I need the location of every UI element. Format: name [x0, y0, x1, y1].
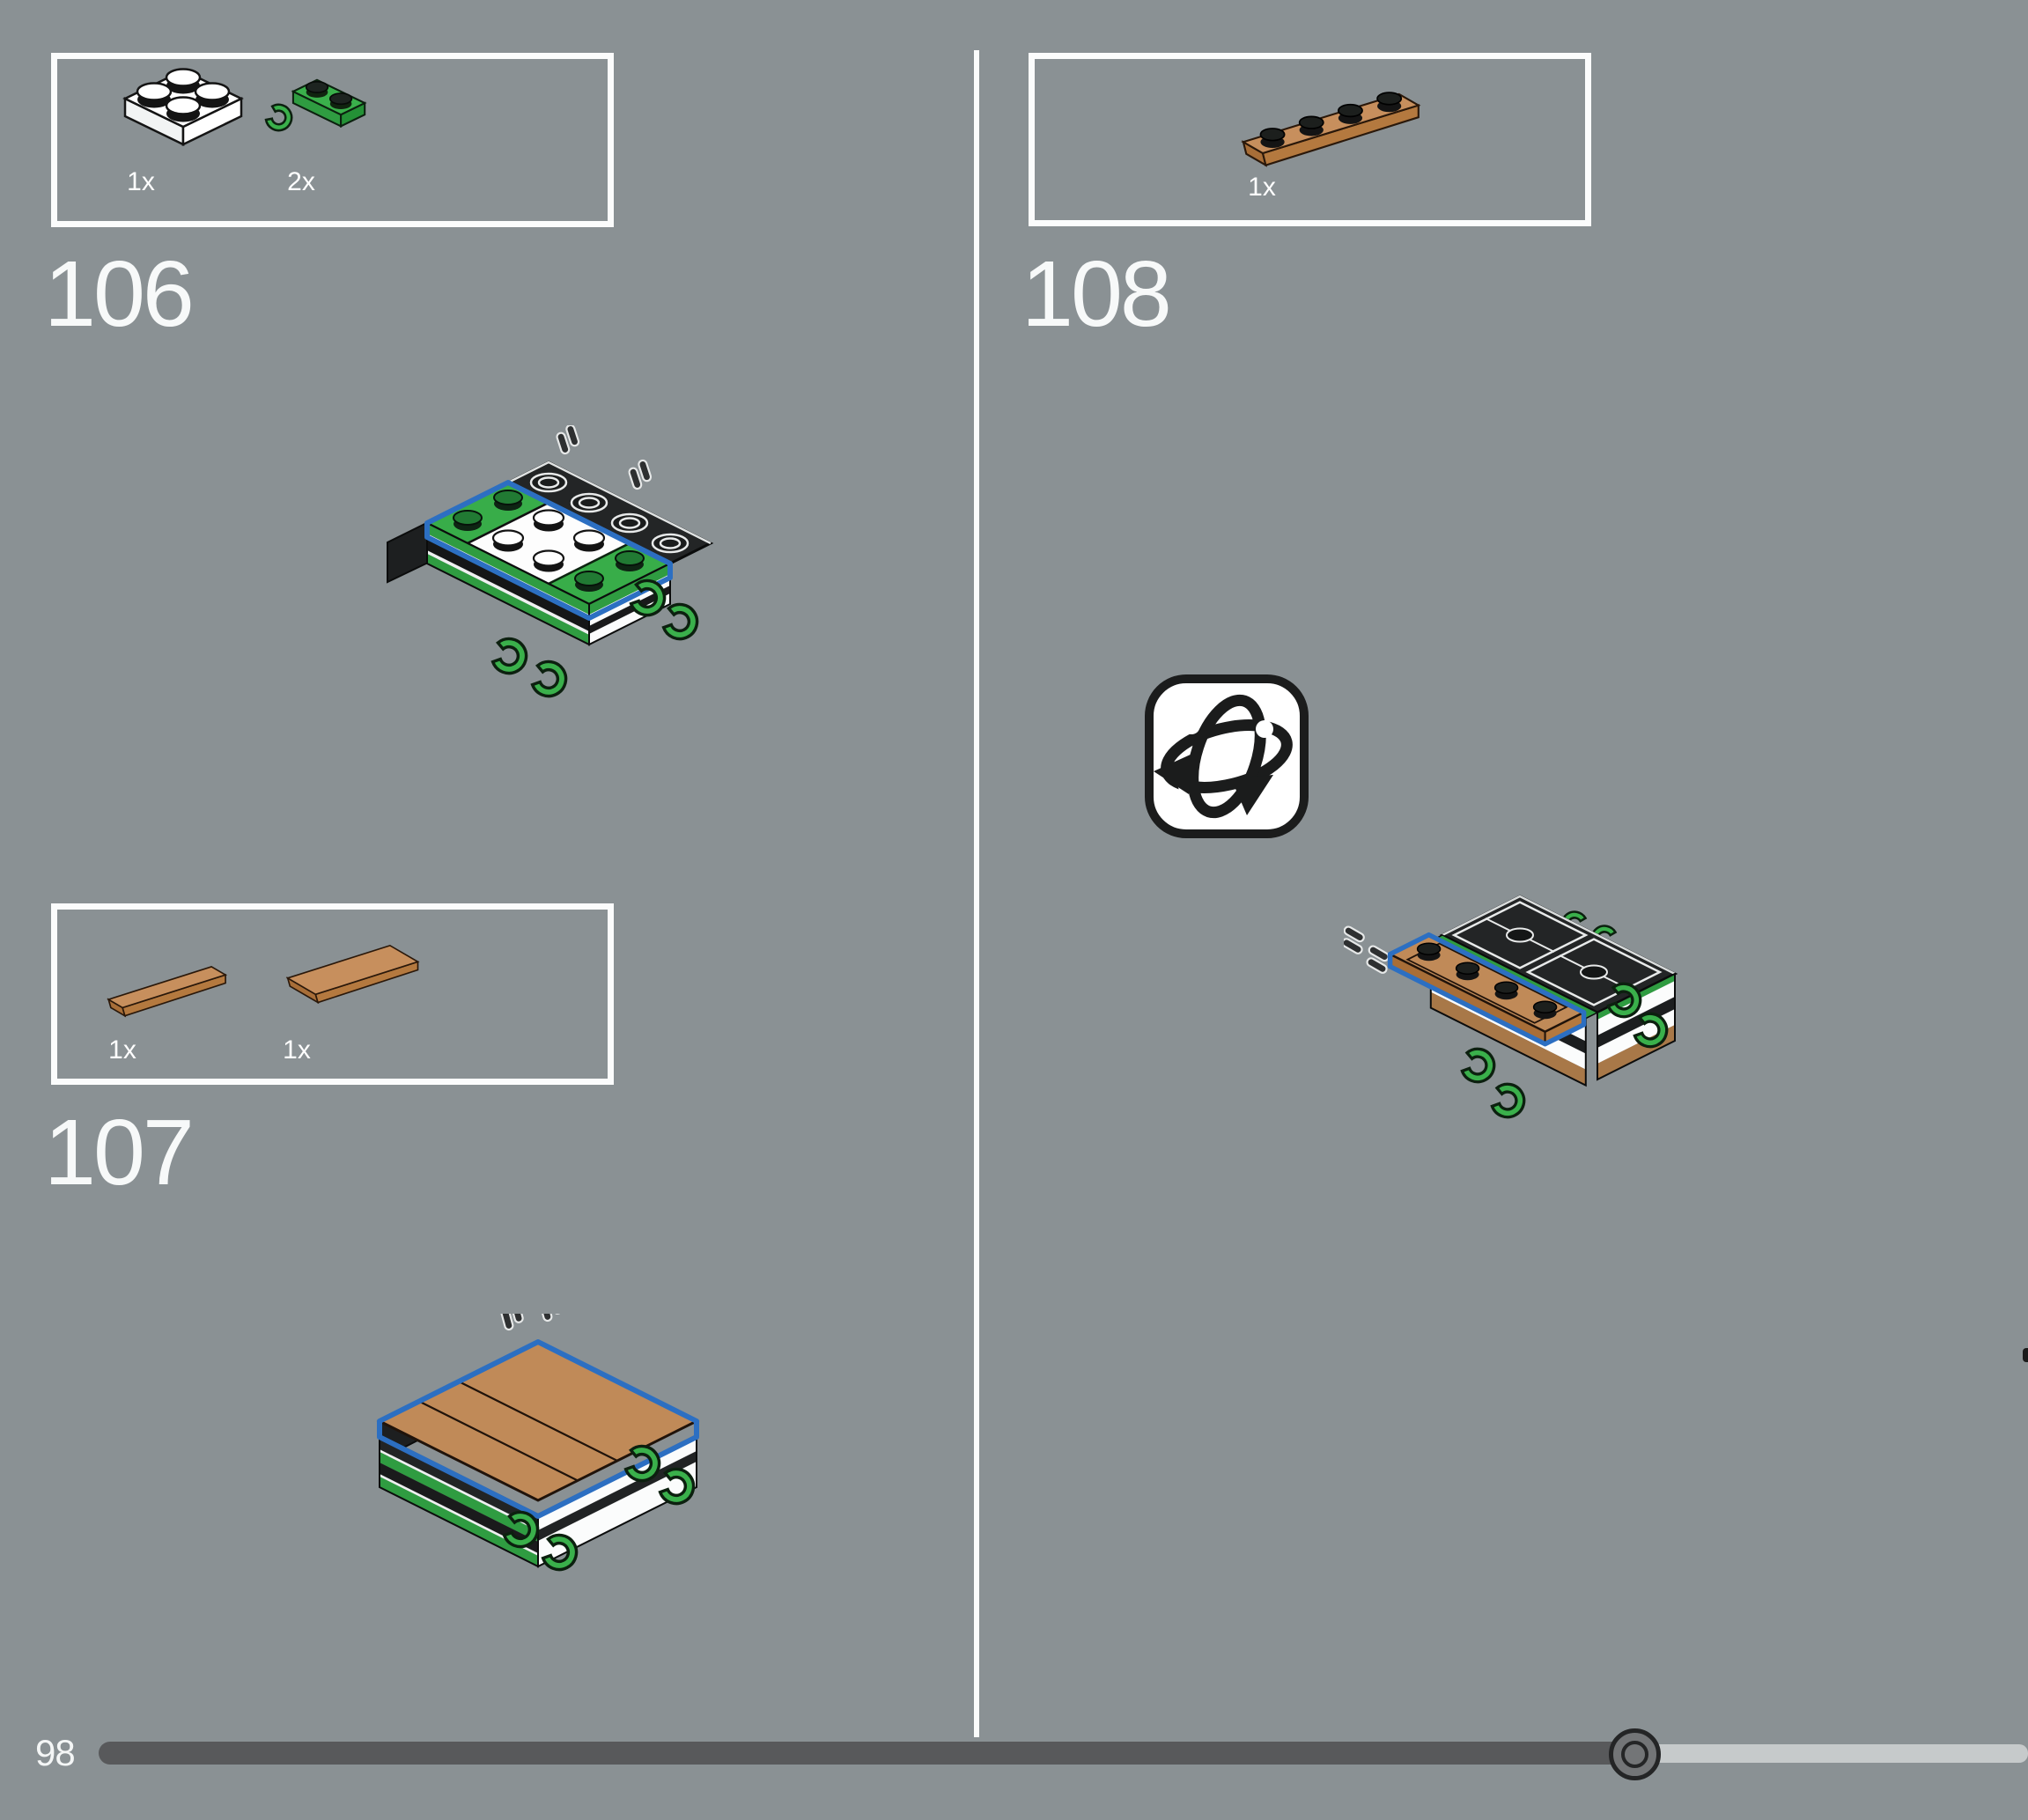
step-number-108: 108 — [1021, 247, 1169, 341]
nougat-2x4-tile-icon — [271, 932, 423, 1019]
assembly-step-106 — [368, 425, 731, 725]
progress-track-filled[interactable] — [99, 1742, 1634, 1765]
part-count-label: 1x — [87, 1035, 158, 1065]
rotate-model-icon — [1143, 673, 1310, 840]
assembly-step-108 — [1344, 879, 1680, 1145]
part-count-label: 1x — [106, 167, 176, 196]
white-2x2-plate-icon — [95, 51, 271, 183]
progress-handle[interactable] — [1609, 1728, 1661, 1780]
nougat-1x4-tile-icon — [91, 944, 232, 1026]
part-count-label: 1x — [1227, 173, 1297, 202]
lego-instructions-page: 1x 2x 106 — [0, 0, 2028, 1820]
step-number-106: 106 — [44, 247, 192, 341]
nougat-1x4-plate-icon — [1218, 63, 1442, 183]
green-1x2-clip-plate-icon — [248, 58, 386, 152]
step-number-107: 107 — [44, 1106, 192, 1199]
part-count-label: 1x — [262, 1035, 332, 1065]
part-count-label: 2x — [266, 167, 336, 196]
assembly-step-107 — [375, 1314, 703, 1588]
right-edge-marker — [2023, 1348, 2028, 1362]
page-number-label: 98 — [35, 1731, 75, 1775]
progress-track-remaining[interactable] — [1631, 1744, 2028, 1763]
column-divider — [974, 50, 979, 1737]
progress-handle-ring — [1621, 1741, 1648, 1768]
